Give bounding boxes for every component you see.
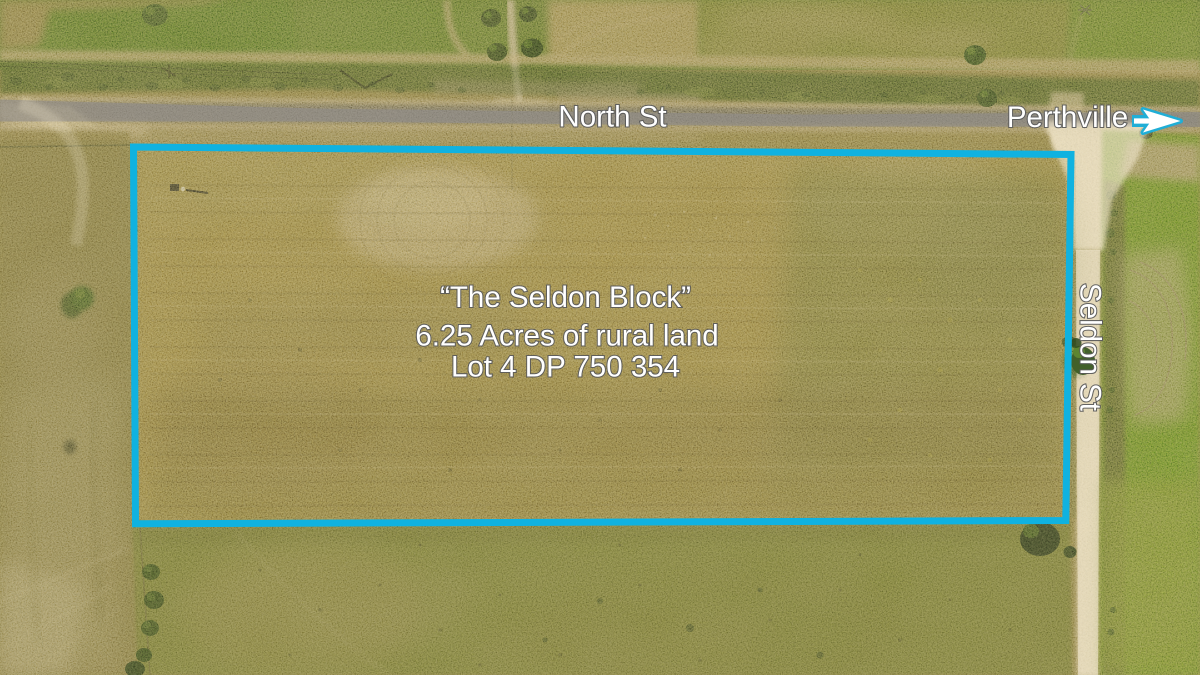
svg-text:Lot 4 DP 750 354: Lot 4 DP 750 354 [451,351,680,384]
svg-text:6.25 Acres of rural land: 6.25 Acres of rural land [415,320,718,353]
svg-text:“The Seldon Block”: “The Seldon Block” [440,281,691,314]
svg-text:Seldon St: Seldon St [1073,283,1106,411]
svg-text:Perthville: Perthville [1007,101,1128,134]
svg-text:North St: North St [558,100,666,133]
